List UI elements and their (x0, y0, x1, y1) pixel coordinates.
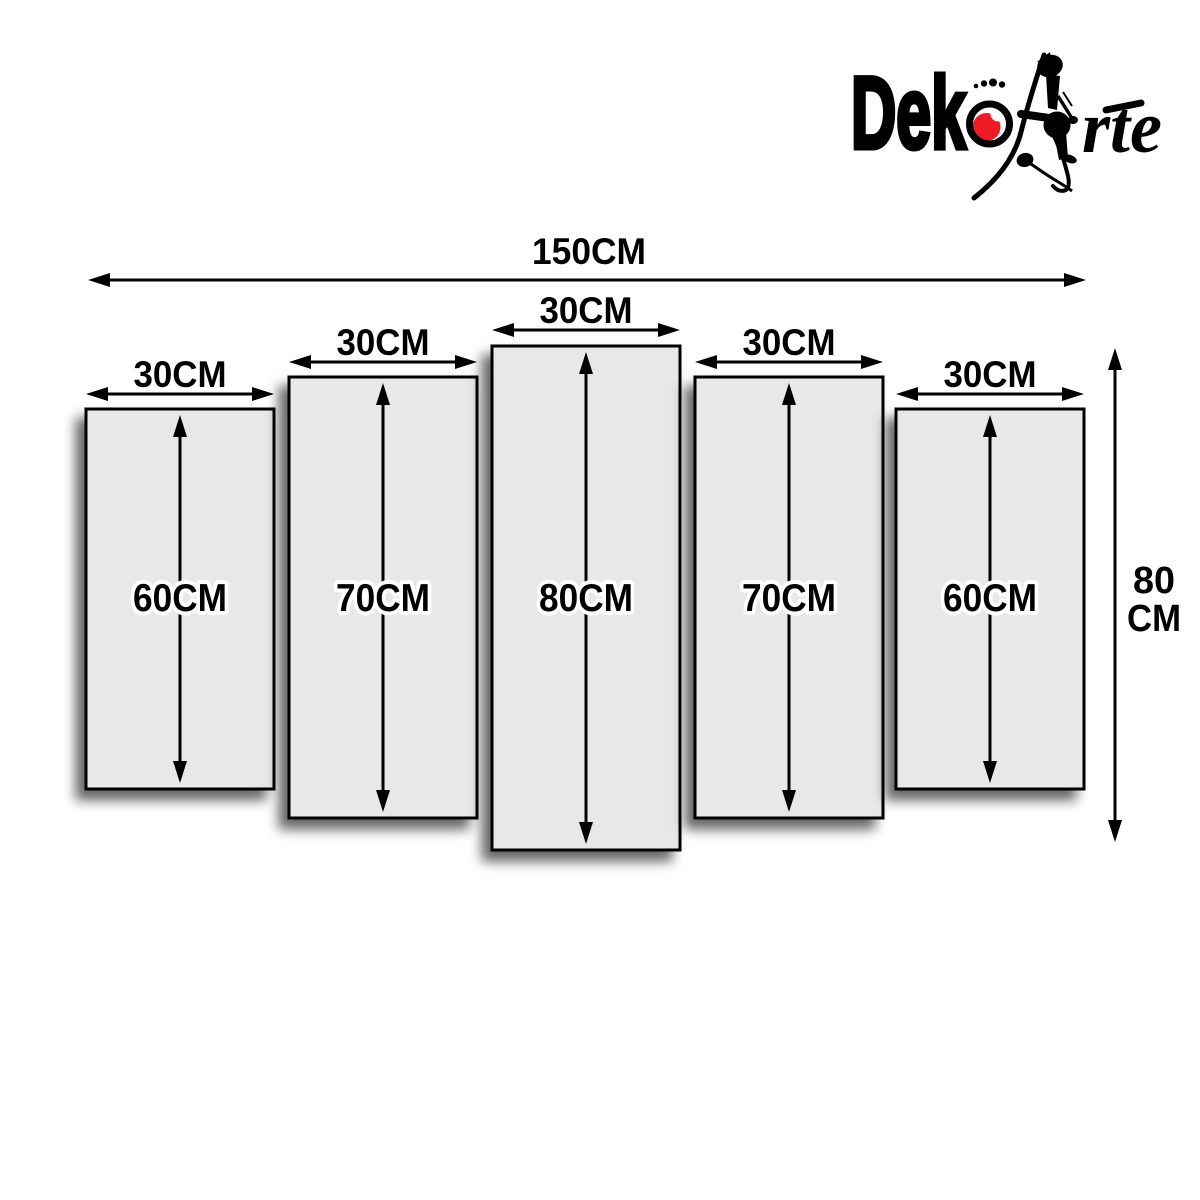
svg-text:30CM: 30CM (540, 290, 633, 331)
svg-text:rte: rte (1082, 87, 1162, 169)
svg-text:80: 80 (1133, 560, 1175, 602)
svg-text:60CM: 60CM (943, 577, 1037, 620)
svg-text:30CM: 30CM (743, 322, 836, 363)
svg-text:Dek: Dek (851, 56, 966, 170)
svg-text:30CM: 30CM (337, 322, 430, 363)
svg-text:30CM: 30CM (134, 354, 227, 395)
svg-text:CM: CM (1127, 598, 1181, 640)
svg-text:30CM: 30CM (944, 354, 1037, 395)
svg-text:60CM: 60CM (133, 577, 227, 620)
svg-text:70CM: 70CM (742, 577, 836, 620)
svg-text:80CM: 80CM (539, 577, 633, 620)
svg-text:150CM: 150CM (532, 231, 646, 272)
svg-text:70CM: 70CM (336, 577, 430, 620)
